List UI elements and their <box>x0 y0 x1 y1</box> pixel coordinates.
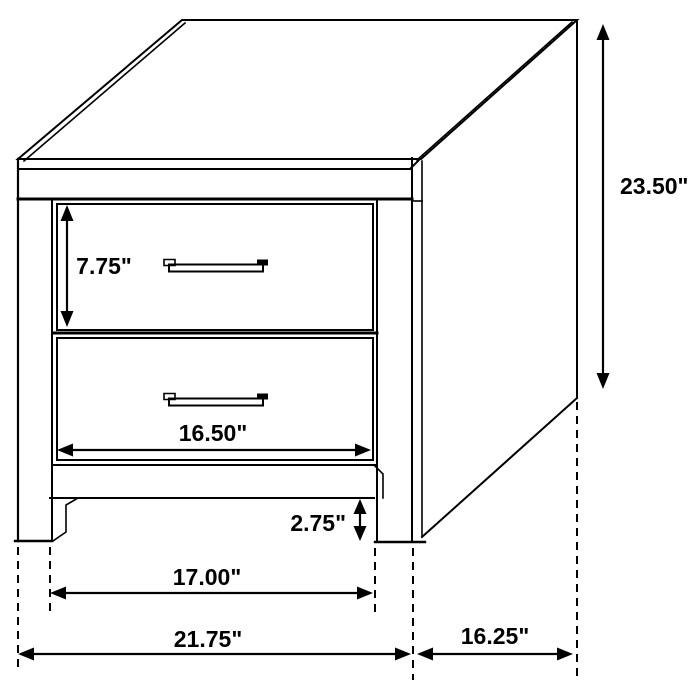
handle-right-post <box>257 394 268 400</box>
arrowhead-down <box>354 526 367 541</box>
arrowhead-left <box>18 648 34 661</box>
dimension-label-drawer-height: 7.75" <box>76 253 132 279</box>
arrowhead-up <box>597 24 610 40</box>
arrowhead-up <box>354 499 367 514</box>
dimension-overall-height: 23.50" <box>597 24 689 389</box>
dimension-label-overall-depth: 16.25" <box>461 623 529 649</box>
handle-right-post <box>257 260 268 266</box>
dimension-overall-width: 21.75" <box>18 626 411 661</box>
dimension-label-drawer-width: 16.50" <box>179 420 247 446</box>
arrowhead-left <box>417 648 433 661</box>
dimension-label-overall-height: 23.50" <box>620 173 688 199</box>
right-leg-inner-face <box>374 465 383 498</box>
handle-bar <box>169 399 263 406</box>
dimension-inner-width: 17.00" <box>50 564 373 600</box>
dimension-label-inner-width: 17.00" <box>173 564 241 590</box>
dimension-label-base-clearance: 2.75" <box>290 510 346 536</box>
dimension-label-overall-width: 21.75" <box>174 626 242 652</box>
furniture-dimension-diagram: 7.75" 16.50" 2.75" 17.00" 21.75" 16.25" <box>0 0 700 700</box>
arrowhead-left <box>50 587 66 600</box>
side-bottom-edge <box>422 398 577 537</box>
handle-bar <box>169 265 263 272</box>
top-surface <box>18 20 577 159</box>
arrowhead-right <box>395 648 411 661</box>
left-leg-inner-face <box>53 498 78 541</box>
arrowhead-right <box>357 587 373 600</box>
dimension-base-clearance: 2.75" <box>290 499 366 541</box>
dimension-overall-depth: 16.25" <box>417 623 573 661</box>
top-face <box>18 20 577 169</box>
arrowhead-right <box>557 648 573 661</box>
arrowhead-down <box>597 373 610 389</box>
nightstand-drawing: 7.75" 16.50" 2.75" 17.00" 21.75" 16.25" <box>0 0 700 700</box>
